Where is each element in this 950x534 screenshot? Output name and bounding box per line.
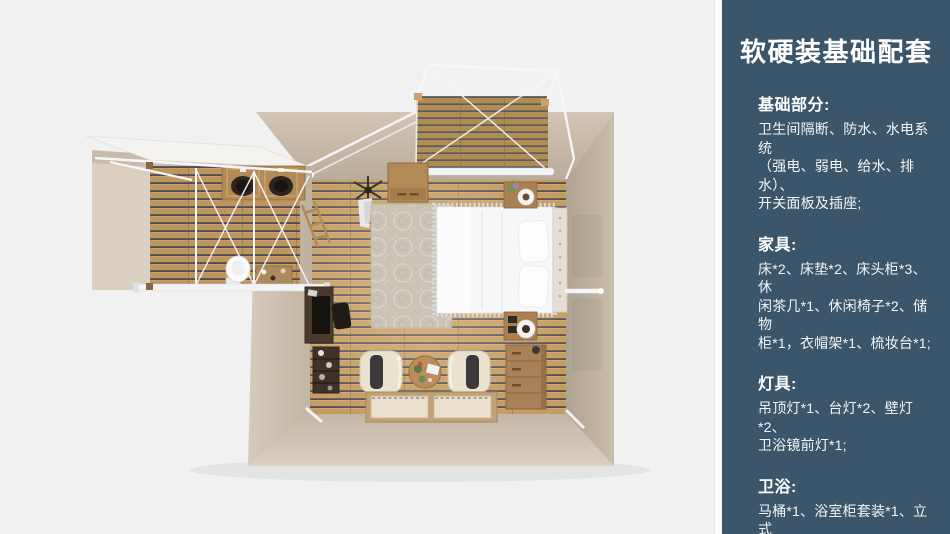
section-basics: 基础部分: 卫生间隔断、防水、水电系统 （强电、弱电、给水、排水）、 开关面板及… [758, 96, 938, 213]
section-bathroom: 卫浴: 马桶*1、浴室柜套装*1、立式 花洒*1; [758, 478, 938, 534]
desk-chair [331, 302, 351, 330]
flower-icon [418, 362, 422, 366]
bathroom-left-wall [92, 150, 150, 290]
floor-mats [366, 392, 497, 422]
coffee-table [409, 356, 441, 388]
section-lighting: 灯具: 吊顶灯*1、台灯*2、壁灯*2、 卫浴镜前灯*1; [758, 375, 938, 455]
section-furniture: 家具: 床*2、床垫*2、床头柜*3、休 闲茶几*1、休闲椅子*2、储物 柜*1… [758, 236, 938, 353]
floorplan-rendering [0, 0, 723, 534]
section-heading: 基础部分: [758, 96, 938, 116]
section-body: 马桶*1、浴室柜套装*1、立式 花洒*1; [758, 502, 938, 534]
section-body: 床*2、床垫*2、床头柜*3、休 闲茶几*1、休闲椅子*2、储物 柜*1，衣帽架… [758, 260, 938, 353]
section-body: 卫生间隔断、防水、水电系统 （强电、弱电、给水、排水）、 开关面板及插座; [758, 120, 938, 213]
info-panel: 软硬装基础配套 基础部分: 卫生间隔断、防水、水电系统 （强电、弱电、给水、排水… [722, 0, 950, 534]
deck-floor [416, 96, 548, 172]
wardrobe-cabinet [388, 163, 428, 202]
section-body: 吊顶灯*1、台灯*2、壁灯*2、 卫浴镜前灯*1; [758, 399, 938, 455]
lounge-chair-right [448, 351, 490, 393]
section-heading: 灯具: [758, 375, 938, 395]
wall-lamp [567, 288, 604, 294]
slide: 软硬装基础配套 基础部分: 卫生间隔断、防水、水电系统 （强电、弱电、给水、排水… [0, 0, 950, 534]
nightstand-bottom [504, 312, 537, 340]
pillow [518, 220, 550, 263]
nightstand-top [504, 182, 537, 208]
section-heading: 卫浴: [758, 478, 938, 498]
pillow [518, 265, 549, 307]
shelf-rack [313, 347, 339, 393]
storage-dresser [506, 345, 546, 409]
section-heading: 家具: [758, 236, 938, 256]
plant-icon [414, 365, 422, 373]
panel-title: 软硬装基础配套 [740, 36, 938, 68]
lounge-chair-left [360, 351, 402, 393]
double-bed [434, 205, 567, 315]
